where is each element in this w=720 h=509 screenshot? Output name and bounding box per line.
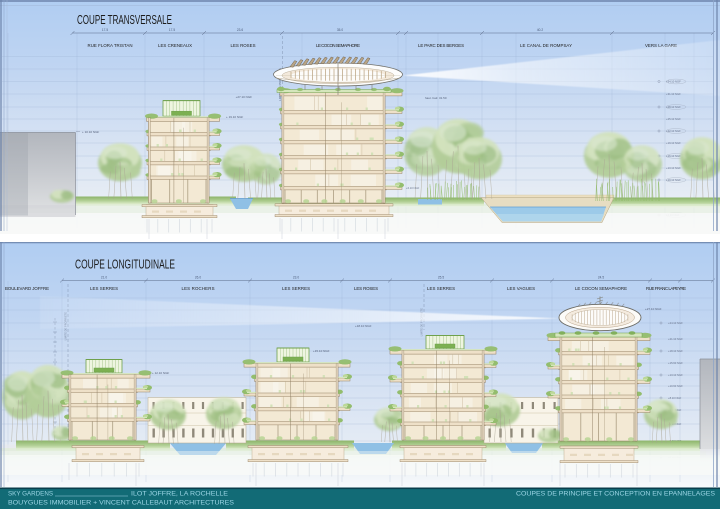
svg-text:+22.10 NGF: +22.10 NGF bbox=[666, 129, 681, 133]
svg-text:LE COCON SEMAPHORE: LE COCON SEMAPHORE bbox=[575, 286, 627, 291]
svg-text:24.5: 24.5 bbox=[598, 276, 604, 280]
svg-text:+15.10 NGF: +15.10 NGF bbox=[313, 349, 330, 353]
svg-text:+25.10 NGF: +25.10 NGF bbox=[666, 117, 681, 121]
svg-text:+27.10 NGF: +27.10 NGF bbox=[645, 307, 662, 311]
svg-text:RUE FRANC LAPEYRE: RUE FRANC LAPEYRE bbox=[646, 286, 686, 291]
svg-text:+16.10 NGF: +16.10 NGF bbox=[666, 154, 681, 158]
svg-text:LES ROSES: LES ROSES bbox=[354, 286, 378, 291]
svg-text:LES CRENEAUX: LES CRENEAUX bbox=[158, 43, 192, 48]
svg-text:+10.10 NGF: +10.10 NGF bbox=[666, 178, 681, 182]
svg-text:+13.10 NGF: +13.10 NGF bbox=[666, 166, 681, 170]
svg-text:+ 12.10 NGF: + 12.10 NGF bbox=[152, 371, 169, 375]
svg-text:LES SERRES: LES SERRES bbox=[90, 286, 118, 291]
svg-text:40.2: 40.2 bbox=[537, 28, 543, 32]
svg-text:+19.10 NGF: +19.10 NGF bbox=[666, 141, 681, 145]
svg-text:LES VAGUES: LES VAGUES bbox=[507, 286, 535, 291]
svg-text:+ 10.10 NGF: + 10.10 NGF bbox=[82, 130, 99, 134]
svg-text:+21.10 NGF: +21.10 NGF bbox=[668, 337, 683, 341]
svg-text:21.0: 21.0 bbox=[101, 276, 107, 280]
svg-text:+8.10 NGF: +8.10 NGF bbox=[668, 396, 682, 400]
svg-text:26.0: 26.0 bbox=[195, 276, 201, 280]
svg-text:+10.60 NGF: +10.60 NGF bbox=[668, 384, 683, 388]
svg-text:+24.10 NGF: +24.10 NGF bbox=[668, 321, 683, 325]
svg-text:BOUYGUES IMMOBILIER + VINCENT: BOUYGUES IMMOBILIER + VINCENT CALLEBAUT … bbox=[8, 500, 234, 507]
svg-text:+6.10 NGF: +6.10 NGF bbox=[406, 186, 420, 190]
svg-text:LE COCON SEMAPHORE: LE COCON SEMAPHORE bbox=[316, 43, 360, 48]
svg-text:LE CANAL DE ROMPSAY: LE CANAL DE ROMPSAY bbox=[520, 43, 572, 48]
svg-text:17.5: 17.5 bbox=[102, 28, 108, 32]
svg-text:+27.10 NGF: +27.10 NGF bbox=[236, 95, 253, 99]
svg-text:COUPES DE PRINCIPE ET CONCEPTI: COUPES DE PRINCIPE ET CONCEPTION EN EPAN… bbox=[516, 491, 715, 498]
svg-text:+13.10 NGF: +13.10 NGF bbox=[668, 373, 683, 377]
svg-text:+18.10 NGF: +18.10 NGF bbox=[668, 349, 683, 353]
svg-text:SKY GARDENS: SKY GARDENS bbox=[8, 491, 53, 498]
svg-text:LE PARC DES BERGES: LE PARC DES BERGES bbox=[418, 43, 464, 48]
svg-text:17.5: 17.5 bbox=[169, 28, 175, 32]
svg-text:25.5: 25.5 bbox=[438, 276, 444, 280]
svg-text:LIMITE DE PROPRIETE: LIMITE DE PROPRIETE bbox=[420, 308, 424, 337]
svg-text:35.0: 35.0 bbox=[337, 28, 343, 32]
svg-text:+18.10 NGF: +18.10 NGF bbox=[355, 324, 372, 328]
svg-text:23.0: 23.0 bbox=[293, 276, 299, 280]
svg-text:+28.10 NGF: +28.10 NGF bbox=[666, 105, 681, 109]
svg-text:+34.10 NGF: +34.10 NGF bbox=[666, 80, 681, 84]
svg-text:COUPE TRANSVERSALE: COUPE TRANSVERSALE bbox=[77, 13, 172, 27]
svg-text:+ 19.10 NGF: + 19.10 NGF bbox=[226, 115, 243, 119]
svg-text:+15.60 NGF: +15.60 NGF bbox=[668, 361, 683, 365]
svg-text:LES SERRES: LES SERRES bbox=[282, 286, 310, 291]
svg-text:+31.10 NGF: +31.10 NGF bbox=[666, 92, 681, 96]
svg-text:RUE FLORA TRISTAN: RUE FLORA TRISTAN bbox=[88, 43, 133, 48]
svg-text:LES ROCHERS: LES ROCHERS bbox=[182, 286, 215, 291]
svg-text:haut. bati: 31.50: haut. bati: 31.50 bbox=[425, 96, 447, 100]
svg-text:LES SERRES: LES SERRES bbox=[427, 286, 455, 291]
svg-text:23.6: 23.6 bbox=[237, 28, 243, 32]
svg-text:LES ROSES: LES ROSES bbox=[231, 43, 256, 48]
svg-text:COUPE LONGITUDINALE: COUPE LONGITUDINALE bbox=[75, 258, 175, 272]
svg-text:BOULEVARD JOFFRE: BOULEVARD JOFFRE bbox=[5, 286, 49, 291]
svg-text:ILOT JOFFRE, LA ROCHELLE: ILOT JOFFRE, LA ROCHELLE bbox=[131, 491, 228, 498]
